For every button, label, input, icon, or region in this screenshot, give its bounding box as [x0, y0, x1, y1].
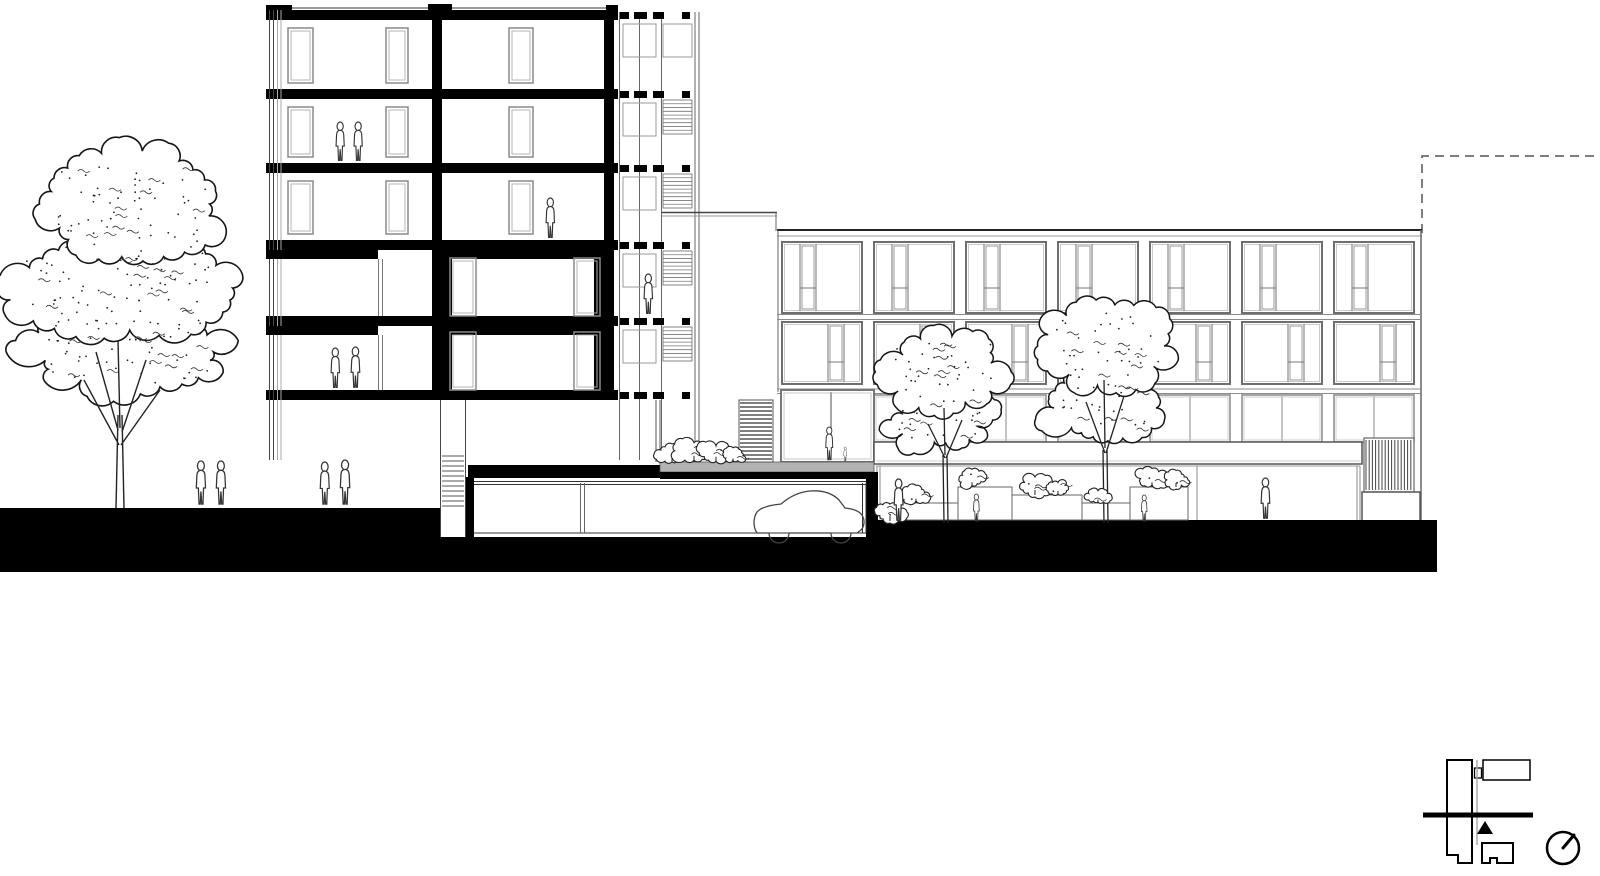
foliage-dot	[953, 400, 955, 402]
foliage-dot	[905, 389, 907, 391]
foliage-dot	[67, 230, 69, 232]
balcony-slab-dash	[653, 318, 664, 325]
balcony-slab-dash	[634, 392, 647, 399]
interior-door	[509, 181, 533, 234]
foliage-dot	[98, 328, 100, 330]
foliage-dot	[68, 342, 70, 344]
foliage-dot	[1108, 384, 1110, 386]
foliage-dot	[189, 283, 191, 285]
person-figure	[196, 461, 205, 504]
foliage-dot	[150, 235, 152, 237]
foliage-dot	[137, 218, 139, 220]
foliage-dot	[947, 384, 949, 386]
foliage-dot	[202, 253, 204, 255]
interior-door	[509, 28, 533, 83]
foliage-dot	[96, 362, 98, 364]
foliage-dot	[1113, 410, 1115, 412]
foliage-dot	[138, 300, 140, 302]
foliage-dot	[138, 255, 140, 257]
foliage-dot	[113, 211, 115, 213]
foliage-dot	[1141, 348, 1143, 350]
foliage-dot	[135, 339, 137, 341]
foliage-dot	[111, 348, 113, 350]
person-figure	[320, 462, 329, 504]
heavy-wall	[594, 326, 604, 390]
foliage-dot	[126, 297, 128, 299]
window-bay	[1334, 242, 1414, 313]
foliage-dot	[130, 284, 132, 286]
floor-slab	[266, 89, 618, 99]
foliage-dot	[1121, 318, 1123, 320]
foliage-dot	[199, 333, 201, 335]
foliage-dot	[51, 264, 53, 266]
foliage-dot	[196, 240, 198, 242]
foliage-dot	[896, 348, 898, 350]
foliage-dot	[1128, 349, 1130, 351]
roof-upstand	[428, 4, 452, 10]
foliage-dot	[1077, 387, 1079, 389]
foliage-dot	[107, 167, 109, 169]
foliage-dot	[85, 356, 87, 358]
foliage-dot	[59, 281, 61, 283]
foliage-dot	[204, 269, 206, 271]
foliage-dot	[1065, 322, 1067, 324]
foliage-dot	[1132, 323, 1134, 325]
foliage-dot	[973, 389, 975, 391]
foliage-dot	[1100, 324, 1102, 326]
foliage-dot	[106, 307, 108, 309]
foliage-dot	[149, 188, 151, 190]
foliage-dot	[951, 355, 953, 357]
foliage-dot	[196, 301, 198, 303]
shrub	[1164, 469, 1189, 490]
planter-box	[958, 487, 1012, 520]
foliage-dot	[32, 304, 34, 306]
ground-section-fill	[0, 508, 440, 572]
key-plan-tower-footprint	[1447, 760, 1472, 863]
foliage-dot	[72, 297, 74, 299]
foliage-dot	[76, 311, 78, 313]
foliage-dot	[132, 362, 134, 364]
foliage-dot	[956, 419, 958, 421]
balcony-slab-dash	[682, 165, 690, 172]
planter-box	[1082, 503, 1130, 520]
foliage-dot	[26, 260, 28, 262]
foliage-dot	[899, 429, 901, 431]
window-bay	[874, 242, 954, 313]
section-elevation-drawing	[0, 0, 1600, 876]
foliage-dot	[66, 243, 68, 245]
foliage-dot	[178, 328, 180, 330]
key-plan-block-footprint	[1483, 760, 1530, 780]
foliage-dot	[901, 422, 903, 424]
foliage-dot	[1150, 335, 1152, 337]
balcony-slab-dash	[634, 165, 647, 172]
roof-upstand	[266, 5, 292, 10]
foliage-dot	[86, 323, 88, 325]
foliage-dot	[947, 356, 949, 358]
foliage-dot	[120, 191, 122, 193]
balcony-slab-dash	[634, 12, 647, 19]
foliage-dot	[194, 217, 196, 219]
foliage-dot	[46, 263, 48, 265]
foliage-dot	[129, 339, 131, 341]
foliage-dot	[195, 279, 197, 281]
interior-door	[288, 181, 313, 234]
foliage-dot	[195, 377, 197, 379]
foliage-dot	[927, 434, 929, 436]
foliage-dot	[111, 311, 113, 313]
interior-door	[450, 258, 476, 316]
foliage-dot	[126, 274, 128, 276]
foliage-dot	[161, 269, 163, 271]
foliage-dot	[167, 232, 169, 234]
foliage-dot	[939, 383, 941, 385]
interior-door	[288, 28, 313, 83]
foliage-dot	[65, 353, 67, 355]
balcony-slab-dash	[682, 318, 690, 325]
foliage-dot	[170, 336, 172, 338]
stair-hatch-panel	[663, 327, 692, 361]
foliage-dot	[93, 201, 95, 203]
foliage-dot	[1093, 387, 1095, 389]
foliage-dot	[1127, 374, 1129, 376]
foliage-dot	[177, 213, 179, 215]
person-figure	[216, 461, 225, 504]
person-figure	[331, 348, 339, 387]
foliage-dot	[48, 339, 50, 341]
balcony-slab-dash	[620, 318, 629, 325]
foliage-dot	[110, 218, 112, 220]
boundary-line	[1422, 156, 1600, 233]
heavy-lintel	[266, 326, 378, 335]
ground-section-fill	[878, 520, 1437, 572]
foliage-dot	[149, 322, 151, 324]
foliage-dot	[154, 382, 156, 384]
balcony-slab-dash	[653, 392, 664, 399]
balcony-slab-dash	[634, 318, 647, 325]
foliage-dot	[1121, 360, 1123, 362]
window-bay	[782, 322, 862, 384]
foliage-dot	[117, 197, 119, 199]
foliage-dot	[918, 375, 920, 377]
balcony-slab-dash	[653, 165, 664, 172]
foliage-dot	[916, 412, 918, 414]
louver-base-box	[1362, 492, 1420, 523]
foliage-dot	[1091, 404, 1093, 406]
balcony-slab-dash	[653, 12, 664, 19]
foliage-dot	[98, 166, 100, 168]
foliage-dot	[972, 415, 974, 417]
foliage-dot	[46, 272, 48, 274]
foliage-dot	[190, 246, 192, 248]
heavy-lintel	[442, 326, 606, 335]
foliage-dot	[134, 178, 136, 180]
foliage-dot	[1075, 369, 1077, 371]
foliage-dot	[139, 197, 141, 199]
stair-hatch-panel	[663, 251, 692, 285]
foliage-dot	[66, 351, 68, 353]
foliage-dot	[151, 288, 153, 290]
foliage-dot	[98, 290, 100, 292]
foliage-dot	[919, 396, 921, 398]
interior-door-leaf	[389, 110, 405, 154]
foliage-dot	[193, 233, 195, 235]
foliage-dot	[1100, 423, 1102, 425]
foliage-dot	[1056, 329, 1058, 331]
foliage-dot	[889, 514, 891, 516]
foliage-dot	[196, 229, 198, 231]
foliage-dot	[990, 377, 992, 379]
foliage-dot	[80, 191, 82, 193]
foliage-dot	[911, 437, 913, 439]
floor-slab	[266, 316, 618, 326]
foliage-dot	[134, 191, 136, 193]
foliage-dot	[53, 299, 55, 301]
foliage-dot	[101, 220, 103, 222]
foliage-dot	[176, 359, 178, 361]
garage-roof-slab	[468, 465, 662, 478]
foliage-dot	[914, 380, 916, 382]
foliage-dot	[188, 372, 190, 374]
foliage-dot	[957, 378, 959, 380]
foliage-dot	[152, 263, 154, 265]
center-wall	[432, 99, 442, 163]
foliage-dot	[174, 236, 176, 238]
terrace-slab-edge	[660, 472, 877, 479]
balcony-slab-dash	[653, 91, 664, 98]
foliage-dot	[61, 171, 63, 173]
floor-slab	[266, 10, 618, 20]
foliage-dot	[979, 412, 981, 414]
interior-door-leaf	[453, 261, 473, 313]
foliage-dot	[162, 182, 164, 184]
foliage-dot	[1130, 316, 1132, 318]
sectioned-tower	[266, 4, 618, 460]
foliage-dot	[68, 278, 70, 280]
foliage-dot	[55, 325, 57, 327]
foliage-dot	[965, 361, 967, 363]
foliage-dot	[87, 219, 89, 221]
foliage-dot	[58, 216, 60, 218]
foliage-dot	[1144, 421, 1146, 423]
planter-box	[1012, 495, 1082, 520]
key-plan	[1423, 760, 1579, 864]
foliage-dot	[982, 373, 984, 375]
right-wall	[604, 99, 614, 163]
foliage-dot	[1063, 350, 1065, 352]
stair-balcony-annex	[620, 12, 778, 460]
foliage-dot	[57, 340, 59, 342]
interior-door	[450, 332, 476, 390]
interior-door-leaf	[512, 110, 530, 154]
right-wall	[604, 20, 614, 89]
heavy-lintel	[266, 250, 378, 259]
key-plan-small-footprint	[1475, 768, 1482, 778]
right-wall	[604, 250, 614, 316]
foliage-dot	[106, 361, 108, 363]
foliage-dot	[147, 277, 149, 279]
foliage-dot	[183, 377, 185, 379]
foliage-dot	[1118, 396, 1120, 398]
foliage-dot	[1099, 406, 1101, 408]
ground-section-fill	[466, 477, 474, 537]
foliage-dot	[82, 286, 84, 288]
foliage-dot	[164, 284, 166, 286]
foliage-dot	[1098, 409, 1100, 411]
foliage-dot	[68, 160, 70, 162]
person-figure	[644, 274, 652, 313]
foliage-dot	[911, 498, 913, 500]
foliage-dot	[149, 351, 151, 353]
large-tree	[0, 136, 243, 508]
key-plan-lower-footprint	[1482, 843, 1513, 863]
site-boundary-dashed-line	[1422, 156, 1600, 233]
foliage-dot	[1140, 362, 1142, 364]
balcony-slab-dash	[634, 242, 647, 249]
foliage-dot	[134, 200, 136, 202]
floor-slab	[266, 163, 618, 173]
foliage-dot	[1109, 323, 1111, 325]
center-wall	[432, 173, 442, 240]
foliage-dot	[53, 303, 55, 305]
foliage-dot	[83, 375, 85, 377]
foliage-dot	[157, 323, 159, 325]
foliage-dot	[1137, 356, 1139, 358]
foliage-dot	[139, 284, 141, 286]
foliage-dot	[90, 337, 92, 339]
foliage-dot	[1118, 328, 1120, 330]
garage-cavity	[474, 480, 866, 533]
section-cut-line	[1423, 813, 1533, 818]
foliage-dot	[1129, 361, 1131, 363]
interior-door-leaf	[512, 184, 530, 231]
foliage-dot	[171, 342, 173, 344]
foliage-dot	[1062, 407, 1064, 409]
foliage-dot	[194, 263, 196, 265]
foliage-dot	[68, 319, 70, 321]
foliage-dot	[928, 343, 930, 345]
foliage-dot	[908, 361, 910, 363]
foliage-dot	[133, 320, 135, 322]
foliage-dot	[1066, 363, 1068, 365]
foliage-dot	[971, 419, 973, 421]
foliage-dot	[149, 362, 151, 364]
interior-door-leaf	[389, 31, 405, 80]
foliage-dot	[61, 313, 63, 315]
foliage-dot	[1135, 424, 1137, 426]
right-wall	[604, 326, 614, 390]
terrace-deck	[660, 462, 874, 472]
heavy-wall	[594, 250, 604, 316]
planter-box	[900, 503, 958, 520]
foliage-dot	[1028, 483, 1030, 485]
balcony-slab-dash	[682, 12, 690, 19]
foliage-dot	[71, 225, 73, 227]
balcony-slab-dash	[682, 91, 690, 98]
balcony-slab-dash	[634, 91, 647, 98]
center-wall	[432, 326, 442, 390]
interior-door-leaf	[291, 110, 310, 154]
foliage-dot	[909, 423, 911, 425]
foliage-dot	[134, 184, 136, 186]
foliage-dot	[1143, 423, 1145, 425]
foliage-dot	[928, 368, 930, 370]
foliage-dot	[164, 258, 166, 260]
foliage-dot	[933, 357, 935, 359]
foliage-dot	[59, 215, 61, 217]
foliage-dot	[895, 359, 897, 361]
foliage-dot	[1105, 313, 1107, 315]
foliage-dot	[159, 282, 161, 284]
interior-door-leaf	[389, 184, 405, 231]
window-bay	[1242, 322, 1322, 384]
foliage-dot	[199, 322, 201, 324]
foliage-dot	[87, 304, 89, 306]
foliage-dot	[990, 344, 992, 346]
drawing-sheet	[0, 0, 1600, 876]
foliage-dot	[1069, 355, 1071, 357]
foliage-dot	[967, 367, 969, 369]
foliage-dot	[186, 354, 188, 356]
person-figure	[351, 347, 360, 387]
foliage-dot	[139, 310, 141, 312]
person-figure	[340, 460, 349, 504]
foliage-dot	[1078, 337, 1080, 339]
foliage-dot	[913, 411, 915, 413]
foliage-dot	[93, 195, 95, 197]
interior-door-leaf	[291, 31, 310, 80]
window-bay	[782, 242, 862, 313]
foliage-dot	[139, 237, 141, 239]
foliage-dot	[140, 250, 142, 252]
foliage-dot	[150, 224, 152, 226]
roof-upstand	[606, 5, 618, 10]
foliage-dot	[970, 473, 972, 475]
balcony-panel	[663, 24, 692, 57]
foliage-dot	[93, 244, 95, 246]
floor-slab	[266, 240, 618, 250]
foliage-dot	[168, 299, 170, 301]
foliage-dot	[85, 174, 87, 176]
person-figure	[546, 198, 554, 237]
foliage-dot	[63, 271, 65, 273]
foliage-dot	[206, 281, 208, 283]
foliage-dot	[109, 202, 111, 204]
foliage-dot	[1120, 392, 1122, 394]
foliage-dot	[58, 223, 60, 225]
interior-door-leaf	[291, 184, 310, 231]
interior-door-leaf	[512, 31, 530, 80]
foliage-dot	[1070, 407, 1072, 409]
foliage-dot	[182, 179, 184, 181]
foliage-dot	[1157, 361, 1159, 363]
balcony-slab-dash	[620, 165, 629, 172]
foliage-dot	[81, 290, 83, 292]
foliage-dot	[204, 189, 206, 191]
foliage-dot	[974, 433, 976, 435]
balcony-slab-dash	[682, 242, 690, 249]
foliage-dot	[178, 324, 180, 326]
foliage-dot	[184, 202, 186, 204]
foliage-dot	[1073, 355, 1075, 357]
foliage-dot	[909, 368, 911, 370]
balcony-slab-dash	[682, 392, 690, 399]
foliage-dot	[96, 259, 98, 261]
foliage-dot	[98, 194, 100, 196]
right-wall	[604, 173, 614, 240]
foliage-dot	[910, 380, 912, 382]
